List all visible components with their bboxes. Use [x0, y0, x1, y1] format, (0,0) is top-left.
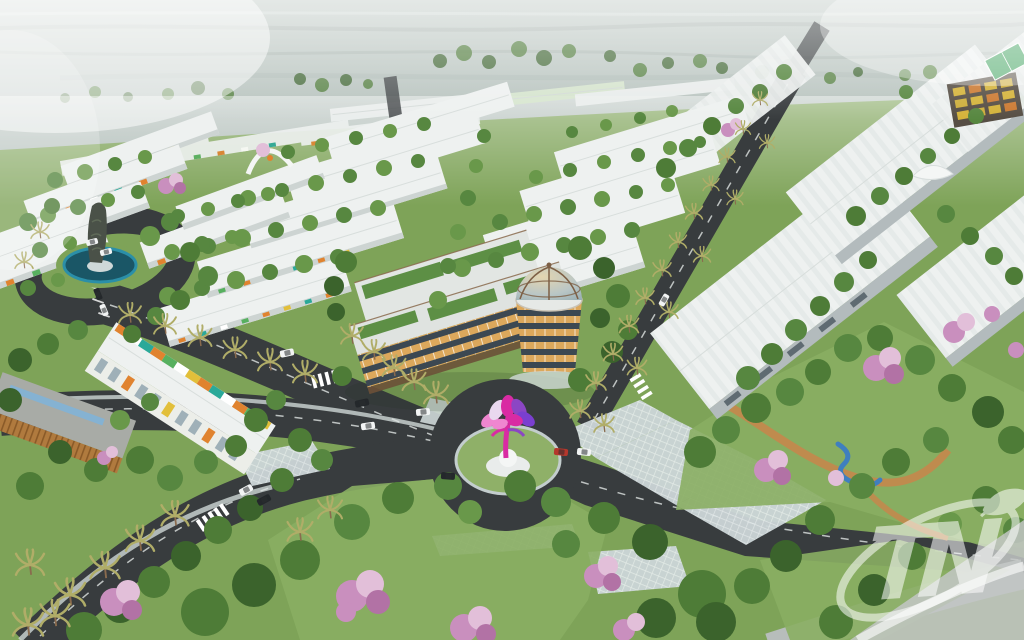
car — [577, 448, 592, 456]
car — [416, 408, 431, 416]
car — [441, 472, 455, 480]
car — [554, 448, 569, 456]
render-canvas: TN — [0, 0, 1024, 640]
aerial-render-scene: TN — [0, 0, 1024, 640]
